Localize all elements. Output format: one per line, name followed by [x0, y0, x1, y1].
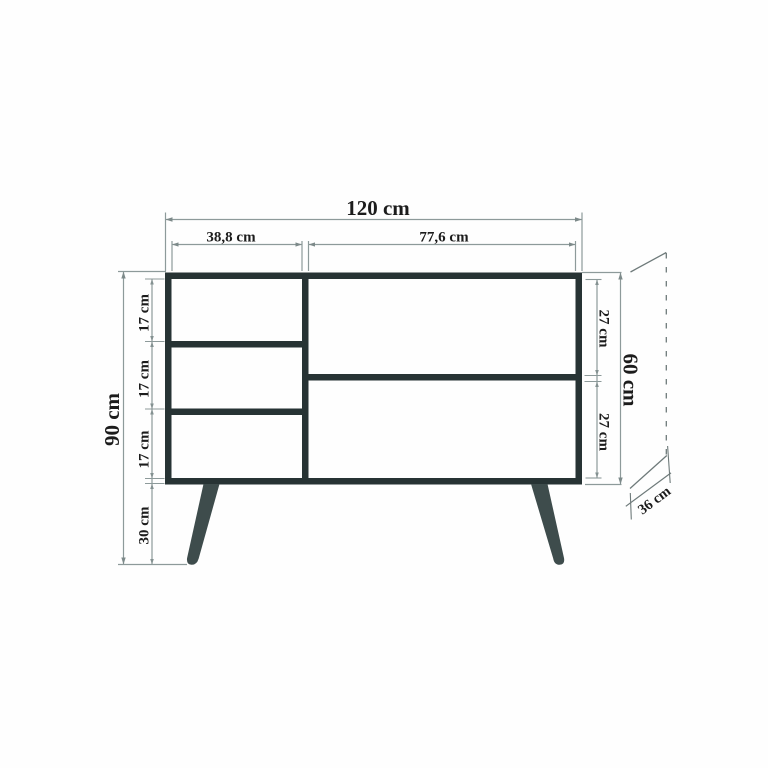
svg-text:17 cm: 17 cm [137, 360, 153, 398]
svg-text:60 cm: 60 cm [619, 353, 643, 407]
svg-text:27 cm: 27 cm [596, 310, 612, 348]
svg-text:27 cm: 27 cm [596, 413, 612, 451]
svg-text:120 cm: 120 cm [346, 196, 410, 220]
svg-text:77,6 cm: 77,6 cm [419, 230, 469, 246]
svg-text:38,8 cm: 38,8 cm [206, 230, 256, 246]
svg-text:17 cm: 17 cm [137, 430, 153, 468]
svg-text:17 cm: 17 cm [137, 294, 153, 332]
svg-text:30 cm: 30 cm [137, 506, 153, 544]
svg-text:90 cm: 90 cm [100, 392, 124, 446]
